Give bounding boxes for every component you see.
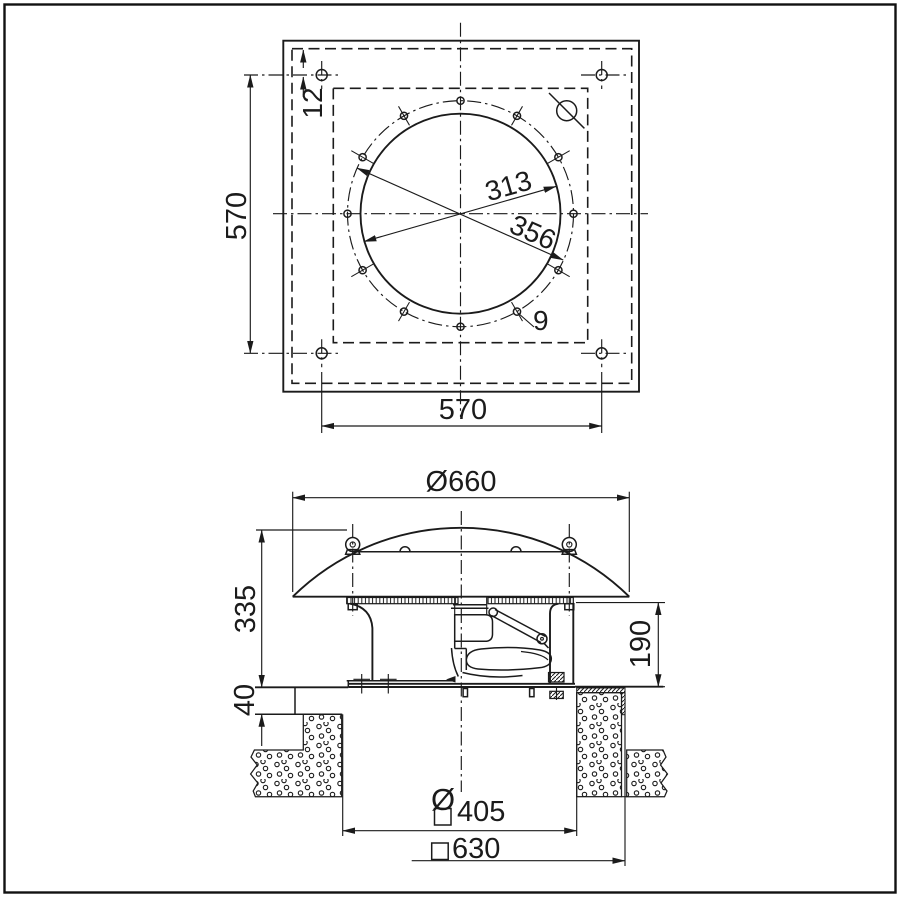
cable-entry-mark (549, 93, 584, 128)
dim-plate-width-570: 570 (322, 372, 602, 433)
base-plate-outline (283, 41, 639, 392)
dim-label-12: 12 (297, 87, 328, 118)
dim-hole-offset-12: 12 (297, 50, 328, 119)
dim-roof-40: 40 (229, 684, 262, 746)
dim-plate-height-570: 570 (221, 75, 253, 353)
dim-label-190: 190 (625, 620, 657, 668)
motor-body (455, 615, 493, 642)
dim-label-660: Ø660 (426, 466, 497, 498)
drain-foot (530, 689, 534, 697)
dim-label-630: 630 (452, 833, 500, 865)
dim-label-313: 313 (482, 165, 535, 208)
dim-curb-630: 630 (412, 833, 625, 865)
top-view: 12 570 570 313 356 9 (221, 23, 648, 433)
roof-right (575, 687, 668, 866)
dim-opening-405: Ø 405 (343, 782, 577, 831)
sheet-border (5, 5, 896, 893)
side-view: Ø660 335 40 190 Ø 405 630 (229, 466, 668, 866)
insulation-roof-right (627, 750, 668, 797)
insulation-left (251, 714, 342, 796)
dim-label-570-left: 570 (221, 192, 253, 240)
dim-label-356: 356 (505, 209, 560, 256)
insulation-curb-right (577, 693, 622, 797)
dim-label-405: 405 (457, 796, 505, 828)
technical-drawing: 12 570 570 313 356 9 (0, 0, 900, 900)
blade-tip (446, 676, 456, 683)
dim-label-9: 9 (533, 305, 549, 336)
curb-cap-strip (577, 688, 625, 693)
dim-label-40: 40 (229, 684, 261, 716)
housing-right-inner-wall (550, 604, 559, 684)
square-symbol (432, 843, 449, 860)
dim-housing-190: 190 (576, 603, 665, 687)
drain-foot (463, 689, 467, 697)
dim-label-570-bottom: 570 (439, 394, 487, 426)
roof-left (251, 687, 349, 836)
housing-left-wall (350, 604, 372, 681)
plate-hidden-edge-dashed (292, 49, 632, 384)
dim-label-335: 335 (230, 585, 262, 633)
dim-height-335: 335 (230, 530, 347, 687)
hinge-arm (489, 608, 549, 648)
